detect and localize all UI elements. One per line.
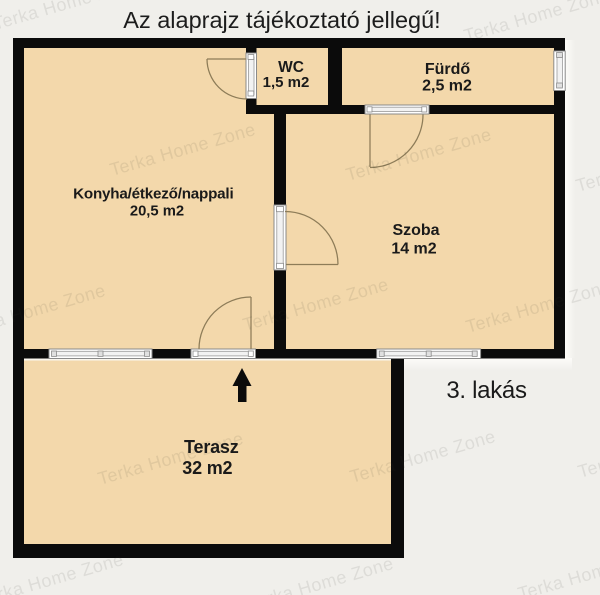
svg-text:20,5 m2: 20,5 m2 (130, 204, 184, 220)
svg-text:Az alaprajz tájékoztató jelleg: Az alaprajz tájékoztató jellegű! (123, 7, 440, 33)
svg-text:Fürdő: Fürdő (425, 61, 471, 78)
svg-text:3. lakás: 3. lakás (446, 377, 527, 404)
svg-text:14 m2: 14 m2 (391, 241, 436, 258)
svg-text:1,5 m2: 1,5 m2 (263, 74, 310, 91)
svg-text:Szoba: Szoba (392, 222, 439, 239)
svg-text:Konyha/étkező/nappali: Konyha/étkező/nappali (73, 186, 233, 203)
svg-text:2,5 m2: 2,5 m2 (422, 78, 472, 95)
